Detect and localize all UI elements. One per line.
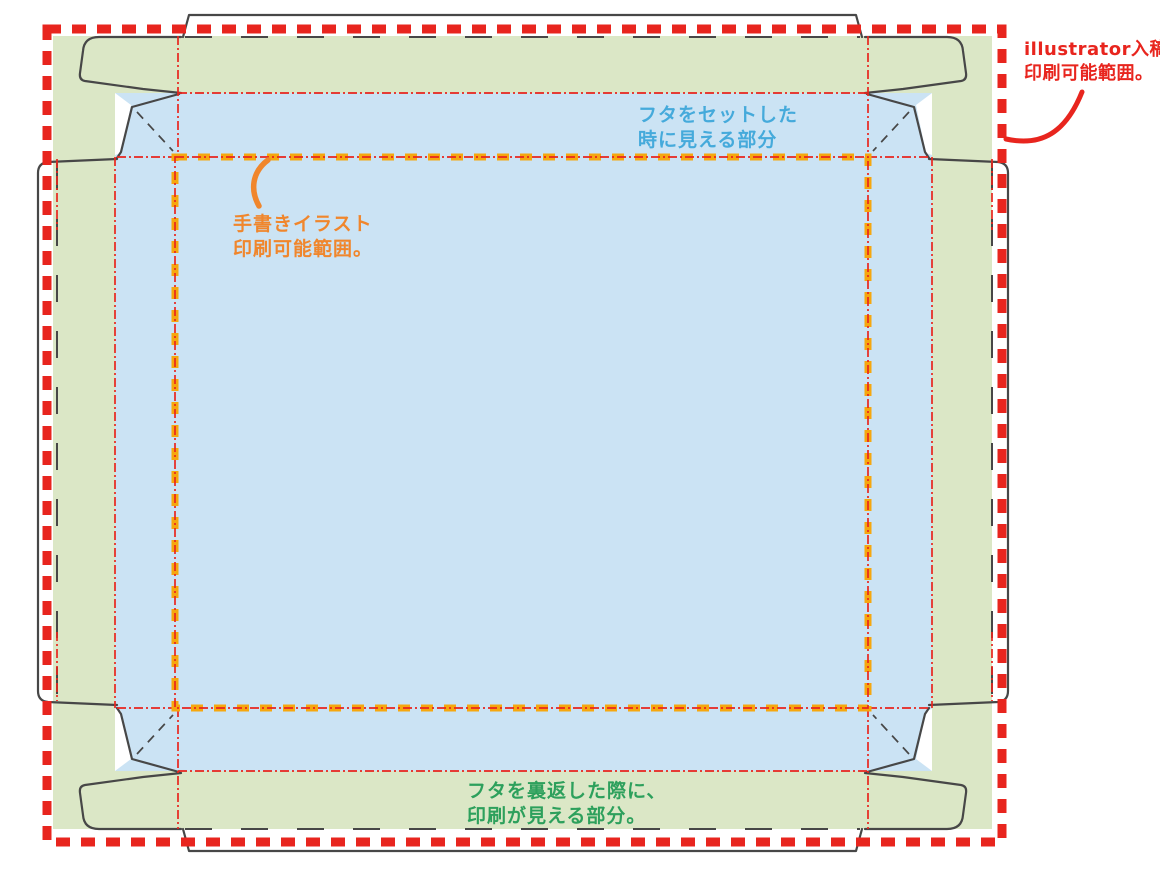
dieline-drawing [0,0,1160,870]
annotation-line: 印刷可能範囲。 [233,237,373,262]
annotation-line: フタをセットした [638,103,798,128]
annotation-line: 手書きイラスト [233,212,373,237]
annotation-handdrawn-range: 手書きイラスト 印刷可能範囲。 [233,212,373,262]
red-arrow [1006,92,1082,141]
annotation-line: illustrator入稿の [1024,38,1160,62]
annotation-lid-reversed-visible: フタを裏返した際に、 印刷が見える部分。 [467,779,666,829]
annotation-illustrator-range: illustrator入稿の 印刷可能範囲。 [1024,38,1160,86]
annotation-line: 印刷が見える部分。 [467,804,666,829]
annotation-lid-set-visible: フタをセットした 時に見える部分 [638,103,798,153]
dieline-diagram: illustrator入稿の 印刷可能範囲。 フタをセットした 時に見える部分 … [0,0,1160,870]
annotation-line: 時に見える部分 [638,128,798,153]
blue-inner-zone [115,93,932,771]
annotation-line: フタを裏返した際に、 [467,779,666,804]
annotation-line: 印刷可能範囲。 [1024,62,1160,86]
